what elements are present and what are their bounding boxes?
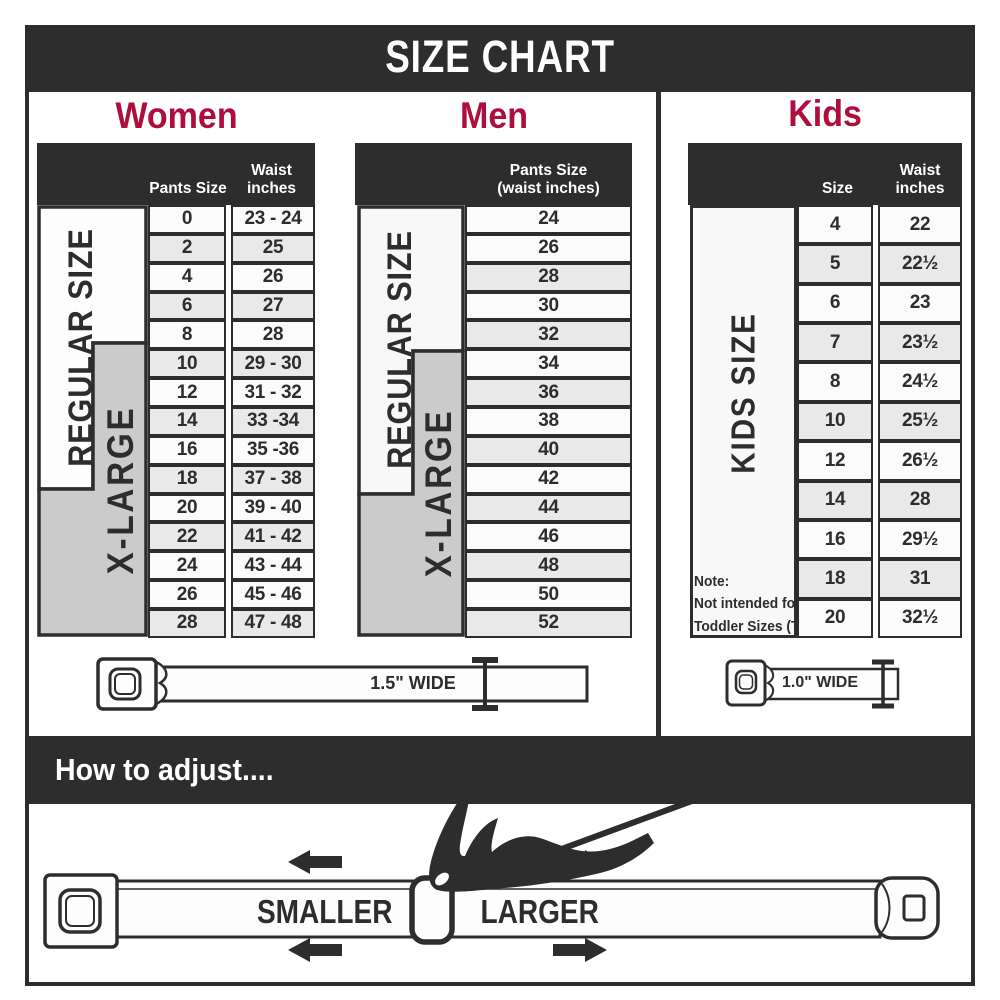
- women-waist-cell: 25: [231, 234, 315, 263]
- men-size-cell: 50: [465, 580, 632, 609]
- women-size-cell: 6: [148, 292, 226, 321]
- kids-table-row: 5 22½: [797, 244, 962, 283]
- arrow-right-bottom-icon: [553, 938, 607, 962]
- kids-table-row: 14 28: [797, 481, 962, 520]
- men-table-row: 30: [465, 292, 632, 321]
- kids-waist-cell: 23: [878, 284, 962, 323]
- men-table-row: 40: [465, 436, 632, 465]
- women-table-row: 8 28: [148, 320, 315, 349]
- women-table-row: 14 33 -34: [148, 407, 315, 436]
- women-table-row: 28 47 - 48: [148, 609, 315, 638]
- women-size-cell: 10: [148, 349, 226, 378]
- women-heading-text: Women: [115, 95, 237, 137]
- men-table-row: 48: [465, 551, 632, 580]
- kids-table-row: 18 31: [797, 559, 962, 598]
- women-table-row: 6 27: [148, 292, 315, 321]
- men-size-cell: 42: [465, 465, 632, 494]
- kids-size-cell: 12: [797, 441, 873, 480]
- kids-waist-cell: 23½: [878, 323, 962, 362]
- women-waist-cell: 47 - 48: [231, 609, 315, 638]
- women-size-cell: 12: [148, 378, 226, 407]
- arrow-left-bottom-icon: [288, 938, 342, 962]
- kids-table-row: 20 32½: [797, 599, 962, 638]
- kids-size-cell: 6: [797, 284, 873, 323]
- women-table-row: 10 29 - 30: [148, 349, 315, 378]
- kids-col-header-waist: Waist inches: [878, 162, 962, 198]
- men-table-row: 32: [465, 320, 632, 349]
- kids-table-header: Size Waist inches: [688, 143, 962, 205]
- men-section-heading: Men: [355, 95, 632, 137]
- women-size-cell: 26: [148, 580, 226, 609]
- men-table-row: 34: [465, 349, 632, 378]
- men-size-cell: 46: [465, 522, 632, 551]
- women-waist-cell: 31 - 32: [231, 378, 315, 407]
- women-table-row: 22 41 - 42: [148, 522, 315, 551]
- arrow-left-top-icon: [288, 850, 342, 874]
- title-bar: SIZE CHART: [25, 25, 975, 88]
- women-size-cell: 24: [148, 551, 226, 580]
- kids-section-heading: Kids: [688, 93, 962, 135]
- men-table-header: Pants Size (waist inches): [355, 143, 632, 205]
- hand-silhouette: [429, 794, 654, 892]
- kids-waist-cell: 24½: [878, 362, 962, 401]
- kids-size-cell: 4: [797, 205, 873, 244]
- men-size-cell: 52: [465, 609, 632, 638]
- size-chart-page: SIZE CHART Women Men Kids Pants Size Wai…: [0, 0, 1000, 1000]
- men-col-header: Pants Size (waist inches): [465, 162, 632, 198]
- women-size-cell: 0: [148, 205, 226, 234]
- kids-waist-cell: 22½: [878, 244, 962, 283]
- women-waist-cell: 33 -34: [231, 407, 315, 436]
- women-table-row: 18 37 - 38: [148, 465, 315, 494]
- men-table-row: 42: [465, 465, 632, 494]
- women-table-header: Pants Size Waist inches: [37, 143, 315, 205]
- adjust-heading: How to adjust....: [55, 752, 274, 788]
- men-heading-text: Men: [459, 95, 527, 137]
- kids-belt-buckle-icon: [727, 661, 765, 705]
- kids-waist-cell: 29½: [878, 520, 962, 559]
- smaller-label: SMALLER: [245, 893, 375, 931]
- kids-table-row: 16 29½: [797, 520, 962, 559]
- men-table-row: 50: [465, 580, 632, 609]
- kids-size-cell: 16: [797, 520, 873, 559]
- men-size-region-graphic: [357, 205, 465, 638]
- men-table-row: 38: [465, 407, 632, 436]
- women-size-cell: 8: [148, 320, 226, 349]
- adjust-heading-band: How to adjust....: [25, 740, 975, 800]
- men-size-cell: 40: [465, 436, 632, 465]
- kids-waist-cell: 22: [878, 205, 962, 244]
- kids-table-row: 8 24½: [797, 362, 962, 401]
- men-table-row: 46: [465, 522, 632, 551]
- women-table-row: 0 23 - 24: [148, 205, 315, 234]
- women-size-cell: 14: [148, 407, 226, 436]
- kids-size-cell: 10: [797, 402, 873, 441]
- kids-table-row: 12 26½: [797, 441, 962, 480]
- kids-heading-text: Kids: [788, 93, 862, 135]
- men-size-cell: 34: [465, 349, 632, 378]
- kids-size-cell: 20: [797, 599, 873, 638]
- women-table-row: 16 35 -36: [148, 436, 315, 465]
- men-size-cell: 44: [465, 494, 632, 523]
- men-size-cell: 24: [465, 205, 632, 234]
- women-table-rows: 0 23 - 24 2 25 4 26 6 27 8 28 10 29 - 30…: [148, 205, 315, 638]
- women-waist-cell: 29 - 30: [231, 349, 315, 378]
- larger-label: LARGER: [470, 893, 600, 931]
- women-size-cell: 22: [148, 522, 226, 551]
- men-size-cell: 26: [465, 234, 632, 263]
- kids-table-rows: 4 22 5 22½ 6 23 7 23½ 8 24½ 10 25½ 12 26…: [797, 205, 962, 638]
- section-divider: [656, 88, 661, 740]
- men-size-cell: 36: [465, 378, 632, 407]
- women-col-header-size: Pants Size: [148, 180, 228, 198]
- kids-size-cell: 7: [797, 323, 873, 362]
- women-waist-cell: 35 -36: [231, 436, 315, 465]
- kids-table-row: 4 22: [797, 205, 962, 244]
- women-size-cell: 16: [148, 436, 226, 465]
- women-waist-cell: 43 - 44: [231, 551, 315, 580]
- women-size-cell: 20: [148, 494, 226, 523]
- kids-waist-cell: 25½: [878, 402, 962, 441]
- men-table-row: 28: [465, 263, 632, 292]
- women-waist-cell: 27: [231, 292, 315, 321]
- women-waist-cell: 26: [231, 263, 315, 292]
- women-size-region-graphic: [37, 205, 148, 638]
- women-waist-cell: 41 - 42: [231, 522, 315, 551]
- men-table-rows: 24 26 28 30 32 34 36 38 40 42 44 46: [465, 205, 632, 638]
- men-size-cell: 32: [465, 320, 632, 349]
- kids-waist-cell: 26½: [878, 441, 962, 480]
- men-table-row: 52: [465, 609, 632, 638]
- men-size-cell: 28: [465, 263, 632, 292]
- kids-size-cell: 18: [797, 559, 873, 598]
- kids-note: Note: Not intended for Toddler Sizes (T): [694, 571, 789, 638]
- men-size-cell: 38: [465, 407, 632, 436]
- men-size-cell: 30: [465, 292, 632, 321]
- women-col-header-waist: Waist inches: [228, 162, 315, 198]
- women-table-row: 12 31 - 32: [148, 378, 315, 407]
- women-size-cell: 18: [148, 465, 226, 494]
- men-table-row: 24: [465, 205, 632, 234]
- kids-table-row: 7 23½: [797, 323, 962, 362]
- adjust-buckle-icon: [45, 875, 117, 947]
- women-section-heading: Women: [37, 95, 315, 137]
- adult-belt-buckle-icon: [98, 659, 156, 709]
- women-table-row: 4 26: [148, 263, 315, 292]
- women-table-row: 2 25: [148, 234, 315, 263]
- women-waist-cell: 37 - 38: [231, 465, 315, 494]
- women-waist-cell: 28: [231, 320, 315, 349]
- men-table-row: 44: [465, 494, 632, 523]
- belt-tongue-icon: [876, 878, 938, 938]
- women-size-cell: 28: [148, 609, 226, 638]
- page-title: SIZE CHART: [385, 31, 615, 83]
- women-waist-cell: 39 - 40: [231, 494, 315, 523]
- women-waist-cell: 45 - 46: [231, 580, 315, 609]
- kids-belt-width-label: 1.0" WIDE: [776, 674, 864, 692]
- men-size-cell: 48: [465, 551, 632, 580]
- women-size-cell: 2: [148, 234, 226, 263]
- kids-size-cell: 5: [797, 244, 873, 283]
- adult-belt-illustration: [96, 653, 591, 715]
- kids-col-header-size: Size: [797, 180, 878, 198]
- women-table-row: 26 45 - 46: [148, 580, 315, 609]
- men-table-row: 26: [465, 234, 632, 263]
- men-table-row: 36: [465, 378, 632, 407]
- kids-waist-cell: 31: [878, 559, 962, 598]
- kids-waist-cell: 32½: [878, 599, 962, 638]
- kids-size-cell: 14: [797, 481, 873, 520]
- women-size-cell: 4: [148, 263, 226, 292]
- women-table-row: 20 39 - 40: [148, 494, 315, 523]
- adult-belt-width-label: 1.5" WIDE: [363, 673, 463, 694]
- kids-table-row: 6 23: [797, 284, 962, 323]
- women-table-row: 24 43 - 44: [148, 551, 315, 580]
- kids-waist-cell: 28: [878, 481, 962, 520]
- kids-size-cell: 8: [797, 362, 873, 401]
- women-waist-cell: 23 - 24: [231, 205, 315, 234]
- hand-pulling-strap-icon: [390, 793, 710, 895]
- kids-table-row: 10 25½: [797, 402, 962, 441]
